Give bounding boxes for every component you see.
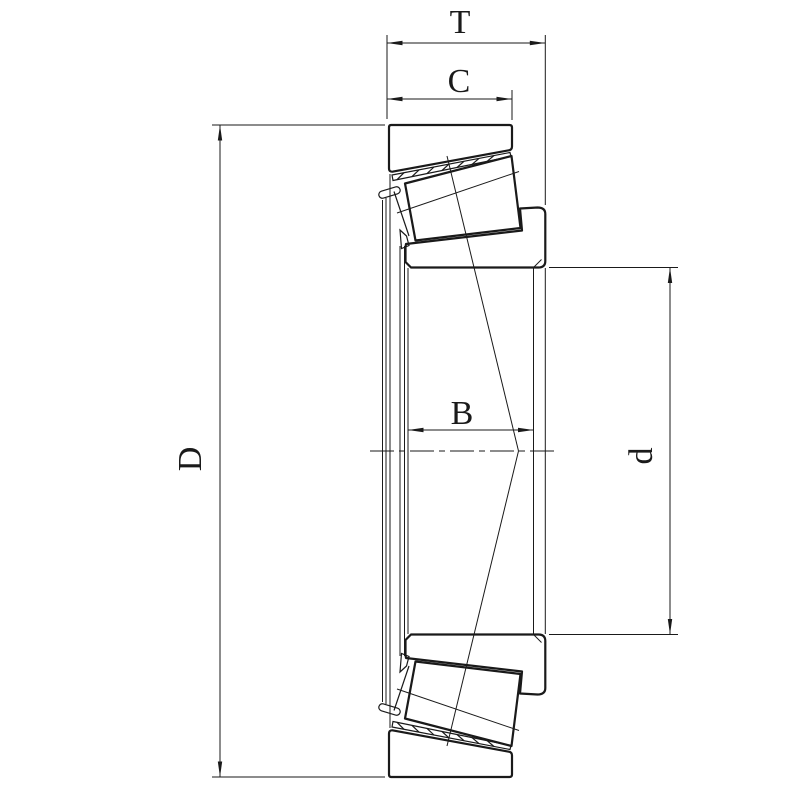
- dimension-D: D: [172, 125, 385, 777]
- tapered-roller-bearing-cross-section: T C B D d: [0, 0, 800, 800]
- dimension-label-D: D: [172, 447, 209, 472]
- dimension-label-C: C: [448, 63, 471, 100]
- dimension-C: C: [387, 63, 512, 120]
- dimension-d: d: [549, 268, 678, 635]
- bearing-lower-half: [378, 451, 545, 777]
- bearing-drawing-canvas: T C B D d: [0, 0, 800, 800]
- dimension-T: T: [387, 4, 545, 205]
- dimension-label-d: d: [623, 448, 660, 465]
- dimension-B: B: [408, 395, 534, 432]
- dimension-label-T: T: [450, 4, 471, 41]
- dimension-label-B: B: [451, 395, 474, 432]
